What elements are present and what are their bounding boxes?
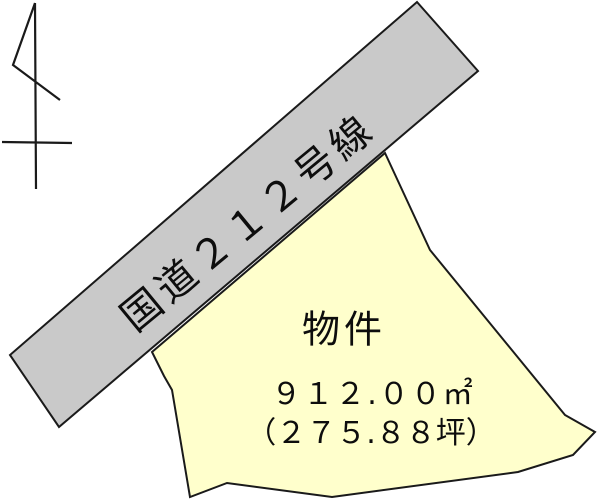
parcel-title-label: 物件	[302, 299, 386, 354]
north-arrow-icon	[2, 3, 72, 189]
site-map: 国道２１２号線 物件 ９１２.００㎡ （２７５.８８坪）	[0, 0, 600, 500]
parcel-area-m2-label: ９１２.００㎡	[271, 369, 475, 413]
parcel-area-tsubo-label: （２７５.８８坪）	[246, 408, 496, 452]
